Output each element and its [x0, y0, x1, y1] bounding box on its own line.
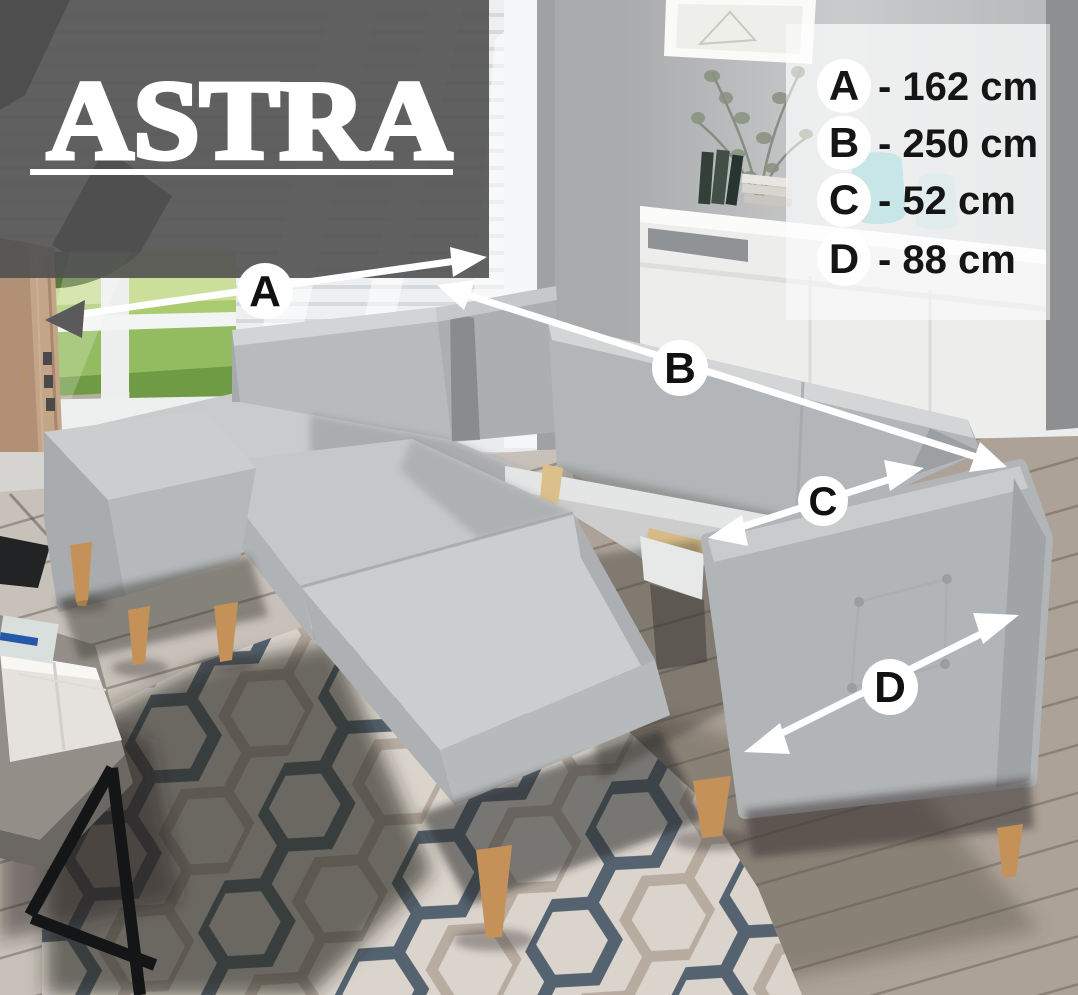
svg-text:B: B [829, 119, 859, 166]
svg-text:A: A [829, 62, 859, 109]
svg-text:A: A [249, 267, 281, 316]
svg-text:C: C [809, 480, 838, 524]
svg-text:B: B [664, 344, 696, 393]
svg-text:- 162 cm: - 162 cm [878, 65, 1038, 109]
svg-text:- 250 cm: - 250 cm [878, 122, 1038, 166]
svg-text:D: D [874, 663, 906, 712]
svg-text:- 88 cm: - 88 cm [878, 238, 1016, 282]
svg-text:- 52 cm: - 52 cm [878, 179, 1016, 223]
svg-text:D: D [829, 235, 859, 282]
svg-text:C: C [829, 176, 859, 223]
svg-text:ASTRA: ASTRA [47, 59, 452, 183]
